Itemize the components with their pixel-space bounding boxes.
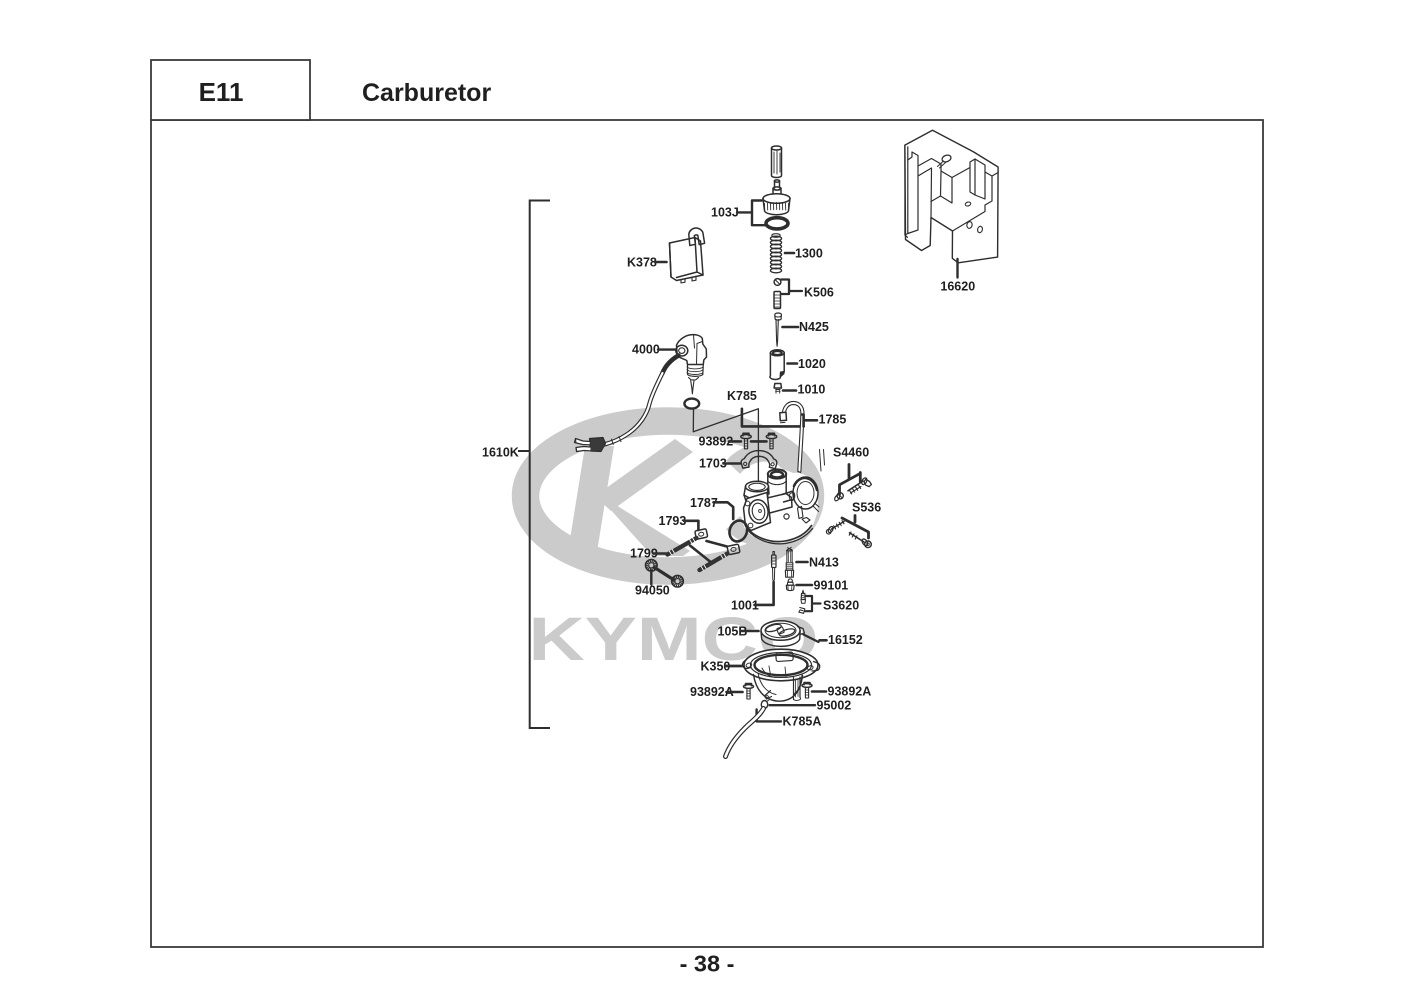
svg-text:1300: 1300 bbox=[795, 247, 823, 261]
svg-text:16152: 16152 bbox=[828, 633, 863, 647]
svg-text:1785: 1785 bbox=[819, 413, 847, 427]
svg-text:99101: 99101 bbox=[814, 579, 849, 593]
svg-text:K378: K378 bbox=[627, 256, 657, 270]
svg-text:1020: 1020 bbox=[798, 357, 826, 371]
svg-text:S3620: S3620 bbox=[823, 599, 859, 613]
svg-text:K785: K785 bbox=[727, 389, 757, 403]
svg-text:K785A: K785A bbox=[783, 715, 822, 729]
svg-text:1793: 1793 bbox=[659, 514, 687, 528]
svg-text:Carburetor: Carburetor bbox=[362, 79, 491, 107]
svg-text:K506: K506 bbox=[804, 286, 834, 300]
svg-text:N413: N413 bbox=[809, 556, 839, 570]
svg-text:16620: 16620 bbox=[940, 280, 975, 294]
svg-text:S536: S536 bbox=[852, 501, 881, 515]
svg-text:95002: 95002 bbox=[817, 699, 852, 713]
svg-text:- 38 -: - 38 - bbox=[680, 951, 735, 977]
svg-text:E11: E11 bbox=[199, 77, 244, 107]
svg-text:94050: 94050 bbox=[635, 584, 670, 598]
svg-text:N425: N425 bbox=[799, 320, 829, 334]
svg-text:103J: 103J bbox=[711, 206, 739, 220]
svg-text:1610K: 1610K bbox=[482, 446, 519, 460]
svg-text:1010: 1010 bbox=[798, 383, 826, 397]
svg-text:4000: 4000 bbox=[632, 343, 660, 357]
svg-text:93892A: 93892A bbox=[828, 685, 872, 699]
svg-text:S4460: S4460 bbox=[833, 446, 869, 460]
